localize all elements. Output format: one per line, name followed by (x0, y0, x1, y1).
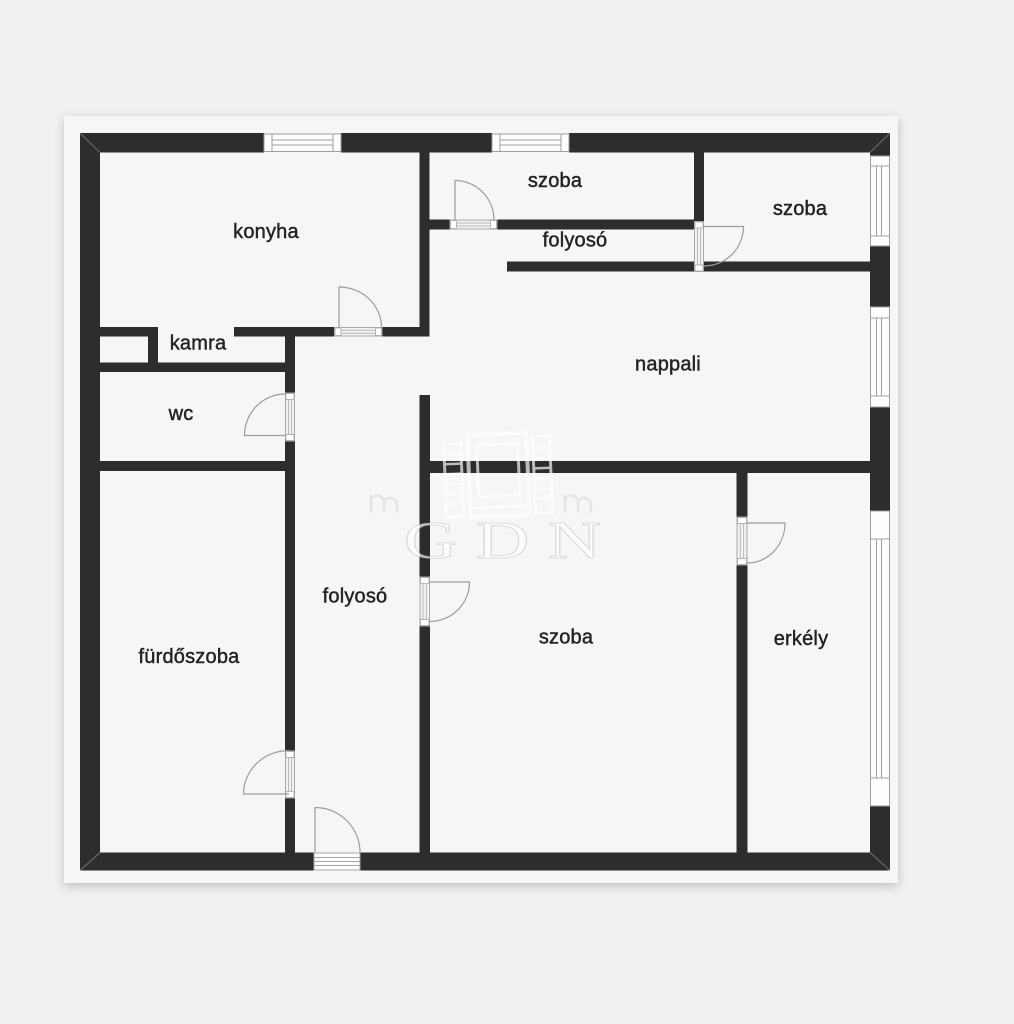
svg-text:erkély: erkély (774, 628, 829, 650)
svg-text:folyosó: folyosó (543, 230, 608, 252)
svg-text:nappali: nappali (635, 354, 701, 376)
svg-text:G D N: G D N (404, 512, 601, 570)
svg-text:wc: wc (168, 403, 194, 425)
svg-text:folyosó: folyosó (323, 586, 388, 608)
svg-text:fürdőszoba: fürdőszoba (139, 646, 241, 668)
svg-text:kamra: kamra (170, 333, 227, 355)
svg-text:konyha: konyha (233, 221, 299, 243)
svg-text:szoba: szoba (773, 198, 828, 220)
svg-text:szoba: szoba (539, 627, 594, 649)
svg-text:szoba: szoba (528, 170, 583, 192)
